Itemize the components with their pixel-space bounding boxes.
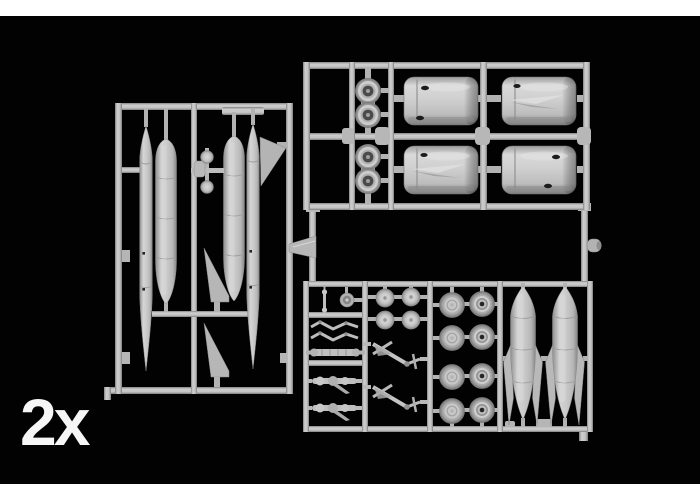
quantity-label: 2x [20, 394, 87, 451]
sprue-gate [251, 108, 255, 125]
part-wheel-hub [470, 325, 495, 350]
kit-sprues-photo: 2x [0, 0, 700, 500]
part-wheel-hub [470, 398, 495, 423]
part-axle [306, 349, 365, 357]
part-tank-half [224, 136, 245, 301]
part-tank-half [156, 139, 177, 304]
part-small-cylinder [587, 239, 602, 252]
part-wheel [440, 326, 465, 351]
part-hub-cap [402, 288, 420, 306]
part-wheel [440, 399, 465, 424]
part-hub-cap [402, 311, 420, 329]
part-engine-cowling [404, 77, 478, 125]
part-engine-cowling [502, 77, 576, 125]
part-engine-cowling [502, 146, 576, 194]
part-wheel-hub [470, 364, 495, 389]
sprue-photo-canvas [0, 0, 700, 500]
part-hub-cap [376, 289, 394, 307]
part-wheel [440, 293, 465, 318]
sprue-gate [164, 108, 168, 140]
sprue-gate [232, 112, 236, 137]
part-hub-cap [376, 311, 394, 329]
sprue-gate [144, 108, 148, 127]
part-wheel-hub [470, 292, 495, 317]
part-wheel [440, 365, 465, 390]
part-engine-cowling [404, 146, 478, 194]
